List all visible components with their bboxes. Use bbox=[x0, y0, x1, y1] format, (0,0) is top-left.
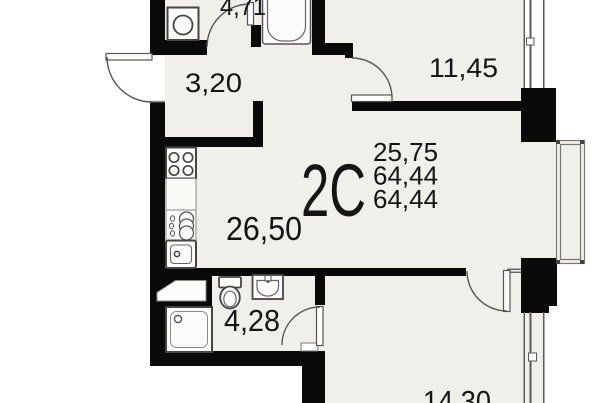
bathtub-icon bbox=[263, 0, 311, 44]
kitchen-sink-icon bbox=[166, 241, 196, 269]
railing-post bbox=[556, 140, 560, 144]
wall-bottom-left bbox=[150, 351, 312, 366]
stove-icon bbox=[166, 148, 196, 179]
window-mullion-mark bbox=[527, 38, 535, 45]
room-area-bedroom-top: 11,45 bbox=[429, 53, 498, 83]
railing-post bbox=[580, 140, 584, 144]
room-area-kitchen-living: 26,50 bbox=[226, 210, 302, 247]
washbasin-icon bbox=[253, 275, 284, 299]
entrance-threshold bbox=[150, 101, 165, 103]
unit-total-area-2: 64,44 bbox=[373, 184, 438, 214]
wall-bath-top-jamb bbox=[251, 25, 261, 47]
unit-type-label: 2С bbox=[301, 149, 366, 232]
window-top-right bbox=[523, 0, 544, 88]
wall-niche-mark bbox=[301, 343, 318, 351]
floorplan-canvas: 4,71 3,20 11,45 26,50 4,28 14,30 2С 25,7… bbox=[0, 0, 605, 403]
kitchen-counter bbox=[166, 179, 196, 211]
railing-post bbox=[580, 260, 584, 264]
room-area-bedroom-bottom: 14,30 bbox=[423, 386, 491, 403]
entrance-opening bbox=[150, 56, 165, 101]
wall-hall-bedroom-stub bbox=[345, 43, 353, 58]
door-leaf bbox=[352, 95, 393, 102]
wall-pier-right-bottom-step bbox=[548, 258, 557, 306]
door-leaf bbox=[504, 271, 511, 312]
wall-corridor-horiz bbox=[163, 137, 260, 147]
wall-pier-right-top bbox=[521, 88, 556, 142]
railing-post bbox=[556, 260, 560, 264]
wall-bath-top-south bbox=[150, 40, 207, 55]
window-mullion-mark bbox=[529, 353, 537, 361]
door-swing-arc bbox=[107, 57, 152, 102]
wall-pier-right-bottom bbox=[521, 258, 549, 313]
wall-bottom-corner bbox=[302, 351, 325, 403]
door-leaf bbox=[106, 54, 152, 61]
room-area-hallway: 3,20 bbox=[185, 68, 242, 98]
floorplan: 4,71 3,20 11,45 26,50 4,28 14,30 2С 25,7… bbox=[0, 0, 605, 403]
wall-bath-bottom-stub bbox=[315, 274, 325, 305]
room-area-bathroom-bottom: 4,28 bbox=[224, 303, 280, 338]
washing-machine-icon bbox=[168, 8, 199, 41]
entrance-door bbox=[106, 54, 152, 103]
shower-icon bbox=[166, 307, 212, 352]
door-leaf bbox=[317, 307, 324, 346]
wall-bedroom-top-south bbox=[352, 101, 523, 111]
water-heater-icon bbox=[166, 210, 196, 241]
room-area-bathroom-top: 4,71 bbox=[220, 0, 266, 21]
wall-living-south bbox=[150, 268, 466, 276]
wall-left-main bbox=[150, 101, 165, 366]
